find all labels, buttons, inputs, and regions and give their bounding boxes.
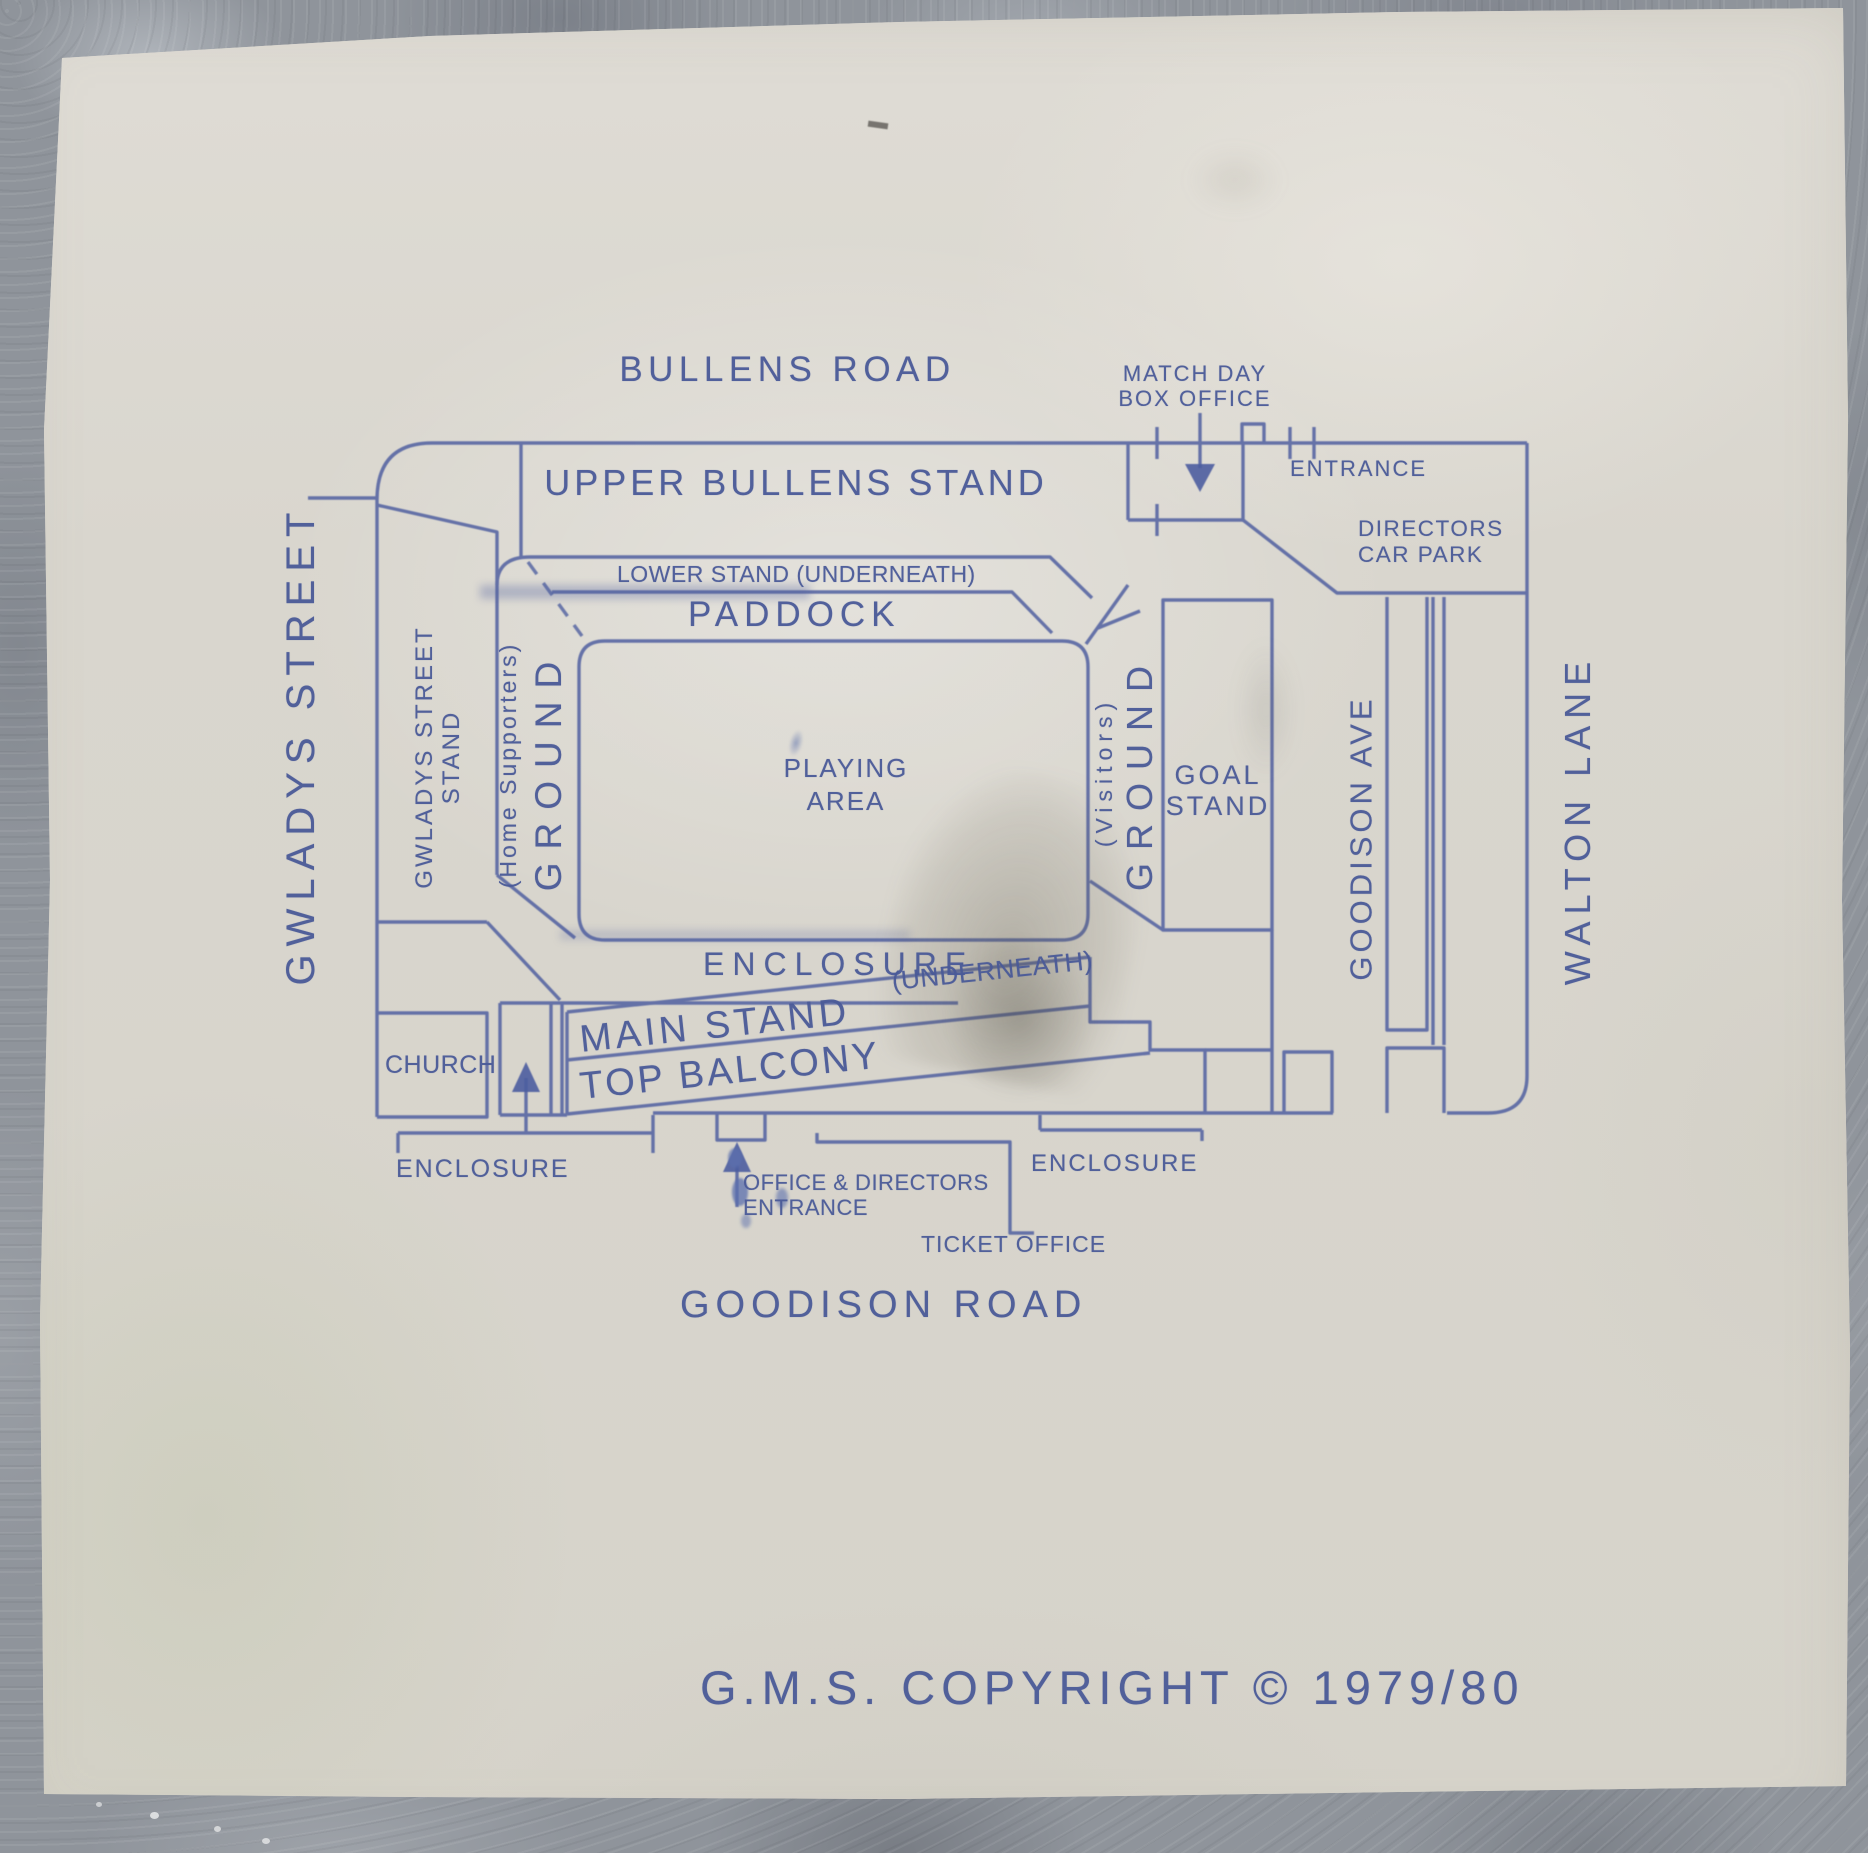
- box-office-arrow-down-icon: [1185, 464, 1215, 492]
- stand-label-upper-bullens: UPPER BULLENS STAND: [540, 462, 1052, 504]
- gwladys-stand-line1: GWLADYS STREET: [411, 607, 438, 907]
- entrance-label: ENTRANCE: [1290, 456, 1427, 482]
- goal-stand-line1: GOAL: [1163, 760, 1273, 791]
- goal-stand-extension: [1205, 930, 1272, 1113]
- goal-stand-line2: STAND: [1163, 791, 1273, 822]
- goodison-ave-strip: [1387, 597, 1427, 1030]
- playing-area-label: PLAYING AREA: [766, 752, 926, 818]
- goal-stand-label: GOAL STAND: [1163, 760, 1273, 822]
- east-enclosure-bracket: [1040, 1115, 1202, 1141]
- directors-label-line1: DIRECTORS: [1358, 516, 1504, 542]
- goodison-ave-box: [1387, 1048, 1444, 1113]
- goodison-ave-wall: [1433, 597, 1444, 1045]
- walkway-lines: [500, 1003, 567, 1115]
- enclosure-arrow-up-icon: [512, 1062, 540, 1092]
- street-label-goodison-road: GOODISON ROAD: [680, 1284, 1080, 1327]
- directors-car-park-label: DIRECTORS CAR PARK: [1358, 516, 1504, 568]
- directors-label-line2: CAR PARK: [1358, 542, 1504, 568]
- box-office-label-line2: BOX OFFICE: [1105, 386, 1285, 411]
- office-porch: [717, 1113, 765, 1140]
- playing-area-line1: PLAYING: [766, 752, 926, 785]
- gwladys-stand-line2: STAND: [438, 607, 465, 907]
- ticket-office-label: TICKET OFFICE: [921, 1231, 1106, 1258]
- stand-label-lower-stand: LOWER STAND (UNDERNEATH): [617, 561, 976, 588]
- ground-label-visitors: GROUND: [1120, 647, 1160, 897]
- enclosure-label-west: ENCLOSURE: [396, 1155, 570, 1184]
- paper-sheet: BULLENS ROAD MATCH DAY BOX OFFICE ENTRAN…: [0, 0, 1868, 1853]
- home-supporters-label: (Home Supporters): [495, 610, 521, 920]
- copyright-line: G.M.S. COPYRIGHT © 1979/80: [700, 1660, 1525, 1715]
- street-label-bullens-road: BULLENS ROAD: [615, 350, 960, 390]
- office-entrance-line1: OFFICE & DIRECTORS: [743, 1170, 989, 1195]
- office-arrow-up-icon: [723, 1142, 751, 1172]
- enclosure-label-east: ENCLOSURE: [1031, 1150, 1198, 1178]
- stand-label-paddock: PADDOCK: [688, 595, 893, 635]
- small-box-east: [1284, 1052, 1332, 1113]
- photo-of-stadium-plan: BULLENS ROAD MATCH DAY BOX OFFICE ENTRAN…: [0, 0, 1868, 1853]
- dashed-boundary: [528, 562, 582, 636]
- box-office-label-line1: MATCH DAY: [1105, 361, 1285, 386]
- playing-area-line2: AREA: [766, 785, 926, 818]
- box-office-kiosk: [1242, 424, 1264, 443]
- office-entrance-line2: ENTRANCE: [743, 1195, 989, 1220]
- street-label-walton-lane: WALTON LANE: [1558, 620, 1598, 1020]
- street-label-gwladys-street: GWLADYS STREET: [277, 485, 325, 1005]
- office-entrance-label: OFFICE & DIRECTORS ENTRANCE: [743, 1170, 989, 1220]
- ne-corner-diagonal: [1086, 585, 1128, 644]
- ground-label-home: GROUND: [529, 635, 569, 905]
- church-label: CHURCH: [385, 1051, 485, 1080]
- box-office-label: MATCH DAY BOX OFFICE: [1105, 361, 1285, 411]
- main-stand-cascade: [1090, 957, 1205, 1113]
- street-label-goodison-ave: GOODISON AVE: [1345, 666, 1379, 1011]
- stand-label-gwladys-stand: GWLADYS STREET STAND: [410, 607, 466, 907]
- visitors-label: (Visitors): [1091, 652, 1117, 892]
